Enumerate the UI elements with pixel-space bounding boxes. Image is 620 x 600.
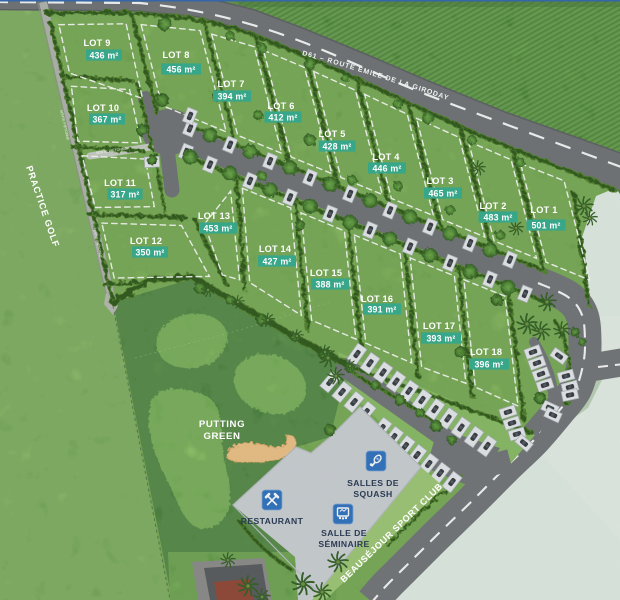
svg-text:LOT 2: LOT 2 — [479, 201, 506, 211]
svg-text:LOT 12: LOT 12 — [130, 236, 162, 246]
svg-text:396 m²: 396 m² — [474, 359, 503, 369]
svg-text:428 m²: 428 m² — [322, 141, 351, 151]
svg-text:LOT 7: LOT 7 — [217, 79, 244, 89]
svg-text:388 m²: 388 m² — [315, 279, 344, 289]
svg-text:LOT 14: LOT 14 — [259, 244, 292, 254]
svg-text:350 m²: 350 m² — [135, 247, 164, 257]
svg-text:LOT 10: LOT 10 — [87, 103, 119, 113]
svg-text:453 m²: 453 m² — [203, 223, 232, 233]
svg-text:LOT 6: LOT 6 — [267, 101, 294, 111]
svg-text:436 m²: 436 m² — [89, 50, 118, 60]
svg-text:483 m²: 483 m² — [483, 212, 512, 222]
svg-text:393 m²: 393 m² — [426, 333, 455, 343]
svg-text:LOT 18: LOT 18 — [470, 347, 502, 357]
svg-text:LOT 8: LOT 8 — [162, 50, 189, 60]
svg-text:LOT 5: LOT 5 — [318, 129, 345, 139]
svg-text:LOT 17: LOT 17 — [423, 321, 455, 331]
svg-text:LOT 15: LOT 15 — [310, 268, 342, 278]
svg-text:PUTTING: PUTTING — [199, 419, 245, 430]
svg-text:394 m²: 394 m² — [217, 91, 246, 101]
svg-text:LOT 9: LOT 9 — [83, 38, 110, 48]
svg-text:317 m²: 317 m² — [110, 189, 139, 199]
svg-text:412 m²: 412 m² — [268, 112, 297, 122]
svg-text:501 m²: 501 m² — [531, 220, 560, 230]
svg-text:367 m²: 367 m² — [92, 114, 121, 124]
svg-text:456 m²: 456 m² — [166, 64, 195, 74]
svg-text:LOT 16: LOT 16 — [361, 294, 393, 304]
svg-text:LOT 4: LOT 4 — [372, 152, 400, 162]
svg-text:446 m²: 446 m² — [372, 163, 401, 173]
svg-text:LOT 11: LOT 11 — [104, 178, 136, 188]
svg-text:LOT 1: LOT 1 — [530, 205, 557, 215]
svg-text:LOT 3: LOT 3 — [426, 176, 453, 186]
svg-text:LOT 13: LOT 13 — [198, 211, 230, 221]
svg-text:427 m²: 427 m² — [262, 256, 291, 266]
svg-text:465 m²: 465 m² — [428, 188, 457, 198]
svg-text:GREEN: GREEN — [203, 431, 240, 442]
svg-text:391 m²: 391 m² — [367, 304, 396, 314]
